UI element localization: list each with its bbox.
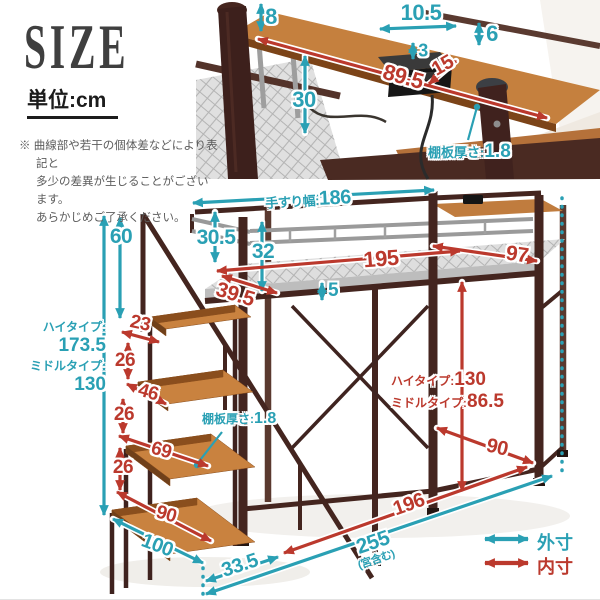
tread-thickness-value: 1.8 <box>254 410 276 427</box>
dim-guard-height-foot: 30.5 <box>197 226 236 250</box>
legend-outer-label: 外寸 <box>537 529 573 555</box>
clearance-mid-label: ミドルタイプ: <box>391 396 467 410</box>
dim-post-top-height: 8 <box>265 4 277 30</box>
height-mid-label: ミドルタイプ: <box>10 357 106 374</box>
dim-tread-thickness: 棚板厚さ:1.8 <box>202 410 276 428</box>
handrail-width-value: 186 <box>318 186 351 210</box>
dim-outlet-width: 10.5 <box>401 0 442 26</box>
legend-inner-label: 内寸 <box>537 553 573 579</box>
height-high-label: ハイタイプ: <box>10 318 106 335</box>
dim-step-rise: 26 <box>114 404 134 426</box>
guard-rail <box>250 219 533 231</box>
dim-frame-gap: 5 <box>328 280 338 302</box>
dim-stair-rail-height: 60 <box>110 225 132 249</box>
handrail-width-label: 手すり幅: <box>265 193 320 211</box>
clearance-mid-value: 86.5 <box>467 391 504 412</box>
clearance-high-value: 130 <box>454 369 486 390</box>
unit-underline <box>27 116 118 119</box>
dim-outlet-height: 6 <box>486 21 498 47</box>
note-line: ※ 曲線部や若干の個体差などにより表記と <box>36 137 218 173</box>
dim-rail-to-shelf: 30 <box>292 87 315 113</box>
dim-guard-height: 32 <box>252 240 274 264</box>
clock <box>463 195 483 204</box>
dim-step-rise: 26 <box>115 350 135 372</box>
dim-handrail-width: 手すり幅:186 <box>265 186 352 213</box>
note-line: 多少の差異が生じることがございます。 <box>36 176 209 206</box>
size-diagram: SIZE 単位:cm ※ 曲線部や若干の個体差などにより表記と 多少の差異が生じ… <box>0 0 600 600</box>
under-bed-clearance: ハイタイプ:130 ミドルタイプ:86.5 <box>391 369 504 413</box>
dim-step-rise: 26 <box>113 457 133 479</box>
unit-label: 単位:cm <box>27 84 106 114</box>
guard-rail <box>250 231 533 243</box>
clearance-high-label: ハイタイプ: <box>391 374 454 388</box>
height-high-value: 173.5 <box>10 335 106 357</box>
shelf-thickness-value: 1.8 <box>484 141 510 162</box>
note-line: あらかじめご了承ください。 <box>36 212 186 224</box>
page-title: SIZE <box>24 10 129 84</box>
total-height: ハイタイプ: 173.5 ミドルタイプ: 130 <box>10 318 106 396</box>
dim-inner-length: 195 <box>362 245 399 274</box>
screw <box>494 121 501 128</box>
dim-shelf-thickness: 棚板厚さ:1.8 <box>428 141 511 163</box>
tread-thickness-label: 棚板厚さ: <box>202 412 254 426</box>
dim-inner-width: 97 <box>504 242 529 269</box>
height-mid-value: 130 <box>10 374 106 396</box>
shelf-thickness-label: 棚板厚さ: <box>428 145 484 160</box>
disclaimer-note: ※ 曲線部や若干の個体差などにより表記と 多少の差異が生じることがございます。 … <box>19 137 218 227</box>
dim-gap: 3 <box>418 41 428 62</box>
